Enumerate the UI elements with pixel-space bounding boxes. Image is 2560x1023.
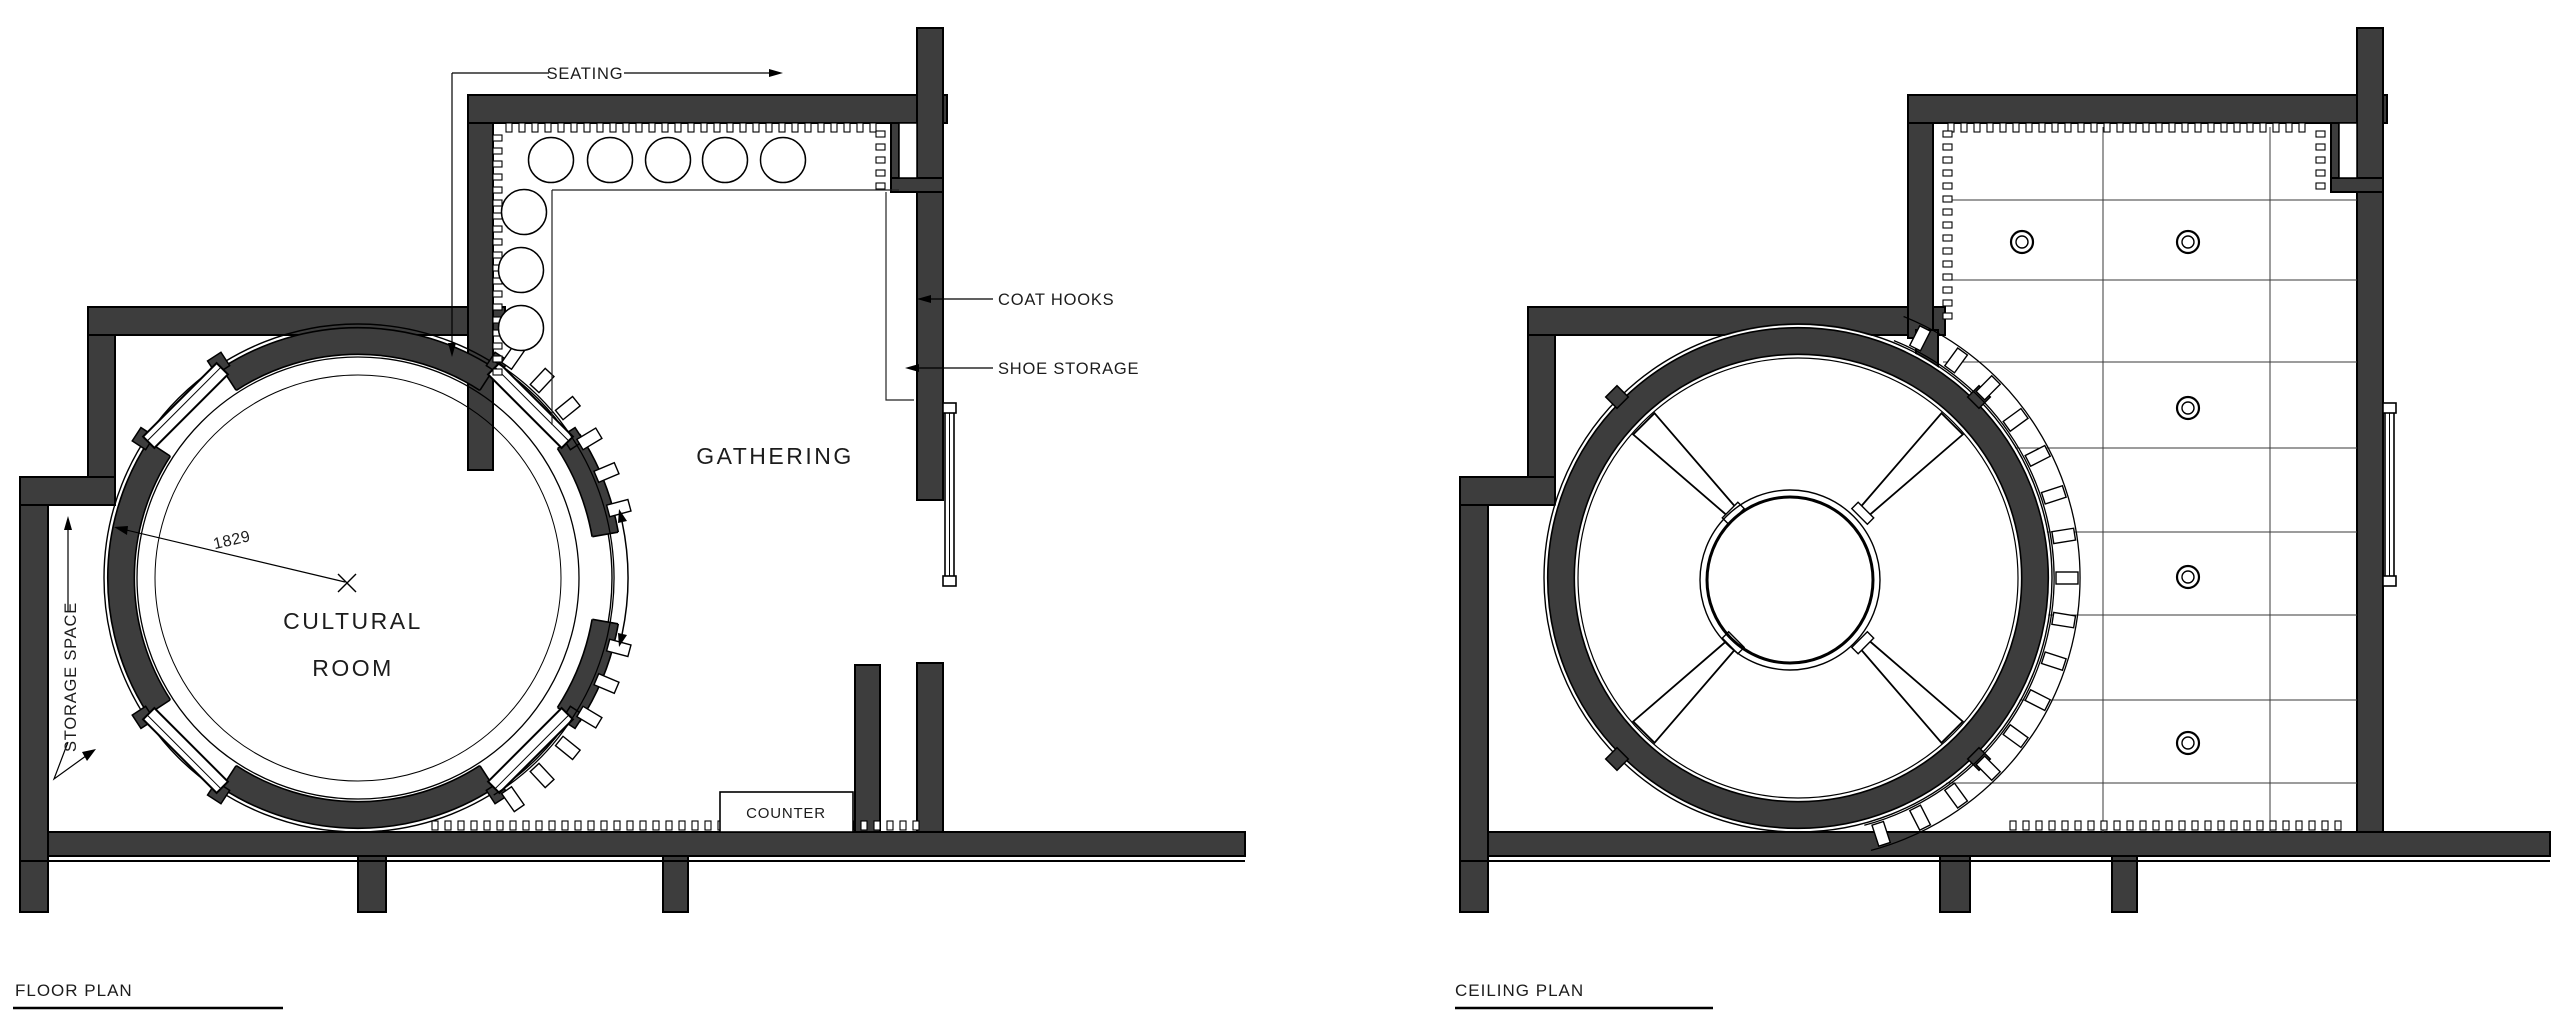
- ceiling-edge-tick: [2335, 821, 2341, 830]
- seat-circle: [502, 190, 547, 235]
- dome-panel-tab-rect: [1910, 805, 1931, 830]
- bench-tick: [844, 123, 850, 132]
- dome-panel-tab-rect: [2052, 528, 2076, 543]
- sliding-door-leaf-c: [2383, 403, 2396, 586]
- floor-edge-tick: [653, 821, 659, 830]
- arrowhead-ne-storage: [82, 749, 96, 761]
- ceiling-edge-tick: [2195, 123, 2201, 132]
- ceiling-light-fixture: [2177, 566, 2199, 588]
- cultural-room-inner-face: [137, 357, 579, 799]
- bench-tick: [857, 123, 863, 132]
- ceiling-edge-tick: [2234, 123, 2240, 132]
- ceiling-edge-tick: [2316, 183, 2325, 189]
- ceiling-edge-tick: [2140, 821, 2146, 830]
- floor-edge-tick: [510, 821, 516, 830]
- seat-circle: [703, 138, 748, 183]
- bench-tick: [493, 239, 502, 245]
- dome-panel-tab-rect: [2003, 725, 2028, 748]
- ceiling-edge-tick: [1943, 222, 1952, 228]
- ceiling-edge-tick: [1943, 157, 1952, 163]
- ceiling-edge-tick: [1943, 274, 1952, 280]
- text-layer: SEATING COAT HOOKS SHOE STORAGE GATHERIN…: [13, 65, 1713, 1008]
- seat-circle: [646, 138, 691, 183]
- wall-niche-bottom-c: [2331, 178, 2383, 192]
- floor-edge-tick: [601, 821, 607, 830]
- pivot-door-leaf: [143, 363, 228, 448]
- wall-left-step: [20, 477, 115, 505]
- ceiling-edge-tick: [2169, 123, 2175, 132]
- ceiling-light-outer: [2177, 231, 2199, 253]
- bench-tick: [506, 123, 512, 132]
- bench-tick: [740, 123, 746, 132]
- wall-counter-side: [855, 665, 880, 832]
- bench-tick: [792, 123, 798, 132]
- floor-edge-tick: [588, 821, 594, 830]
- dome-panel-tab-rect: [2025, 690, 2050, 711]
- floor-plan-title: FLOOR PLAN: [15, 981, 133, 1000]
- pivot-door-leaf-panel: [143, 708, 228, 793]
- seat-circle: [499, 248, 544, 293]
- shoe-storage-label: SHOE STORAGE: [998, 360, 1139, 378]
- ceiling-edge-tick: [2299, 123, 2305, 132]
- floor-edge-tick: [497, 821, 503, 830]
- ceiling-edge-tick: [1943, 144, 1952, 150]
- floor-edge-tick: [536, 821, 542, 830]
- bench-tick: [493, 252, 502, 258]
- ceiling-plan-room-geometry: [1544, 123, 2357, 850]
- floor-edge-tick: [627, 821, 633, 830]
- ceiling-edge-tick: [1943, 248, 1952, 254]
- seat-circle: [529, 138, 574, 183]
- bench-tick: [818, 123, 824, 132]
- bench-tick: [876, 131, 885, 137]
- dome-panel-tab: [2003, 409, 2028, 432]
- wall-right-c: [2357, 28, 2383, 832]
- dome-panel-tab-rect: [2041, 652, 2066, 670]
- floor-edge-tick: [640, 821, 646, 830]
- floor-edge-tick: [445, 821, 451, 830]
- partition-panel-tab: [530, 763, 554, 787]
- partition-pocket-arc: [569, 622, 606, 715]
- bench-tick: [493, 343, 502, 349]
- bench-tick: [876, 183, 885, 189]
- ceiling-light-fixture: [2177, 231, 2199, 253]
- niche-opening: [899, 123, 917, 178]
- dome-panel-tab-rect: [2052, 612, 2076, 627]
- dome-panel-tab: [2041, 652, 2066, 670]
- wall-stub-1: [358, 856, 386, 912]
- dome-panel-tab: [1910, 805, 1931, 830]
- gathering-label: GATHERING: [696, 443, 854, 469]
- dome-panel-tab-rect: [2041, 486, 2066, 504]
- bench-tick: [532, 123, 538, 132]
- ceiling-edge-tick: [1943, 209, 1952, 215]
- ceiling-edge-tick: [2208, 123, 2214, 132]
- dome-panel-tab: [1945, 783, 1968, 808]
- ceiling-edge-tick: [2036, 821, 2042, 830]
- partition-panel-tab: [555, 736, 580, 759]
- wall-right-upper: [917, 28, 943, 500]
- ceiling-edge-tick: [2316, 144, 2325, 150]
- floor-edge-tick: [887, 821, 893, 830]
- seat-circle: [761, 138, 806, 183]
- bench-tick: [545, 123, 551, 132]
- bench-tick: [636, 123, 642, 132]
- floor-edge-tick: [705, 821, 711, 830]
- ceiling-edge-tick: [2156, 123, 2162, 132]
- ceiling-light-outer: [2177, 732, 2199, 754]
- bench-tick: [493, 135, 502, 141]
- bench-tick: [779, 123, 785, 132]
- seat-circle: [499, 306, 544, 351]
- partition-panel-tab: [555, 397, 580, 420]
- ceiling-edge-tick: [1943, 235, 1952, 241]
- ceiling-edge-tick: [2231, 821, 2237, 830]
- dome-panel-tab: [2052, 612, 2076, 627]
- ceiling-edge-tick: [2179, 821, 2185, 830]
- ceiling-edge-tick: [2114, 821, 2120, 830]
- ceiling-edge-tick: [1943, 261, 1952, 267]
- architectural-sheet: SEATING COAT HOOKS SHOE STORAGE GATHERIN…: [0, 0, 2560, 1023]
- ceiling-edge-tick: [1974, 123, 1980, 132]
- pivot-door-leaf-line: [147, 367, 221, 441]
- ceiling-edge-tick: [2091, 123, 2097, 132]
- ceiling-edge-tick: [2000, 123, 2006, 132]
- floor-edge-tick: [900, 821, 906, 830]
- ceiling-edge-tick: [2127, 821, 2133, 830]
- ceiling-edge-tick: [1943, 313, 1952, 319]
- bench-tick: [876, 144, 885, 150]
- ceiling-edge-tick: [2296, 821, 2302, 830]
- floor-edge-tick: [913, 821, 919, 830]
- wall-bottom-c: [1460, 832, 2550, 856]
- ceiling-edge-tick: [2270, 821, 2276, 830]
- ceiling-edge-tick: [2013, 123, 2019, 132]
- ceiling-edge-tick: [1943, 196, 1952, 202]
- bench-tick: [753, 123, 759, 132]
- floor-edge-tick: [874, 821, 880, 830]
- ceiling-light-outer: [2011, 231, 2033, 253]
- ceiling-edge-tick: [2316, 170, 2325, 176]
- partition-panel-tab: [577, 428, 602, 450]
- bench-tick: [493, 148, 502, 154]
- pivot-door-leaf-line: [495, 715, 569, 789]
- floor-edge-tick: [679, 821, 685, 830]
- pivot-door-leaf: [488, 708, 573, 793]
- partition-panel-tab-rect: [555, 736, 580, 759]
- ceiling-edge-tick: [2078, 123, 2084, 132]
- seat-circle: [588, 138, 633, 183]
- ceiling-edge-tick: [2117, 123, 2123, 132]
- wall-seating-top: [468, 95, 947, 123]
- pivot-door-leaf-line: [147, 715, 221, 789]
- ceiling-edge-tick: [1987, 123, 1993, 132]
- ceiling-edge-tick: [1943, 131, 1952, 137]
- floor-edge-tick: [549, 821, 555, 830]
- ceiling-edge-tick: [2205, 821, 2211, 830]
- floor-plan-room-geometry: [104, 123, 919, 832]
- bench-tick: [805, 123, 811, 132]
- floor-edge-tick: [432, 821, 438, 830]
- pivot-door-leaf: [488, 363, 573, 448]
- arrowhead-up-storage: [64, 516, 72, 530]
- wall-cultural-top-c: [1528, 307, 1945, 335]
- partition-panel-tab: [577, 706, 602, 728]
- partition-panel-tab: [502, 787, 524, 812]
- ceiling-edge-tick: [2039, 123, 2045, 132]
- ceiling-edge-tick: [2182, 123, 2188, 132]
- wall-left-lower-c: [1460, 505, 1488, 912]
- cultural-room-label-line2: ROOM: [312, 655, 394, 681]
- wall-stub-1c: [1940, 856, 1970, 912]
- ceiling-edge-tick: [2026, 123, 2032, 132]
- ceiling-edge-tick: [2010, 821, 2016, 830]
- dome-panel-tab: [1945, 348, 1968, 373]
- ceiling-edge-tick: [2244, 821, 2250, 830]
- floor-edge-tick: [692, 821, 698, 830]
- partition-swing-arrow: [622, 522, 628, 634]
- floor-edge-tick: [861, 821, 867, 830]
- niche-opening-c: [2339, 123, 2357, 178]
- ceiling-light-outer: [2177, 397, 2199, 419]
- storage-space-label: STORAGE SPACE: [62, 602, 80, 752]
- bench-tick: [493, 356, 502, 362]
- bench-tick: [662, 123, 668, 132]
- ceiling-edge-tick: [2049, 821, 2055, 830]
- wall-left-step-c: [1460, 477, 1555, 505]
- bench-tick: [876, 170, 885, 176]
- floor-edge-tick: [614, 821, 620, 830]
- ceiling-edge-tick: [1943, 300, 1952, 306]
- floor-edge-tick: [575, 821, 581, 830]
- partition-panel-tab-rect: [530, 368, 554, 392]
- ceiling-light-fixture: [2177, 732, 2199, 754]
- floor-edge-tick: [484, 821, 490, 830]
- ceiling-edge-tick: [1961, 123, 1967, 132]
- wall-left-lower: [20, 505, 48, 912]
- bench-tick: [727, 123, 733, 132]
- partition-panel-tab-rect: [577, 706, 602, 728]
- bench-tick: [493, 174, 502, 180]
- ceiling-edge-tick: [2257, 821, 2263, 830]
- cultural-room-label-line1: CULTURAL: [283, 608, 423, 634]
- ceiling-edge-tick: [2143, 123, 2149, 132]
- ceiling-edge-tick: [1943, 170, 1952, 176]
- bench-tick: [610, 123, 616, 132]
- ceiling-edge-tick: [2075, 821, 2081, 830]
- ceiling-edge-tick: [2166, 821, 2172, 830]
- wall-stub-2: [663, 856, 688, 912]
- ceiling-light-fixture: [2177, 397, 2199, 419]
- bench-tick: [675, 123, 681, 132]
- bench-tick: [493, 369, 502, 375]
- bench-tick: [649, 123, 655, 132]
- room-center-mark: [338, 574, 356, 592]
- bench-tick: [493, 187, 502, 193]
- seating-label: SEATING: [547, 65, 624, 83]
- plans-drawing: SEATING COAT HOOKS SHOE STORAGE GATHERIN…: [0, 0, 2560, 1023]
- ceiling-edge-tick: [2101, 821, 2107, 830]
- partition-panel-tab-rect: [555, 397, 580, 420]
- cultural-room-floor-line: [155, 375, 561, 781]
- dome-panel-tab: [2025, 446, 2050, 467]
- ceiling-edge-tick: [2218, 821, 2224, 830]
- leader-lines: [54, 73, 993, 779]
- ceiling-edge-tick: [2286, 123, 2292, 132]
- ceiling-edge-tick: [2283, 821, 2289, 830]
- bench-tick: [766, 123, 772, 132]
- partition-panel-tab-rect: [577, 428, 602, 450]
- ceiling-plan-title: CEILING PLAN: [1455, 981, 1584, 1000]
- ceiling-edge-tick: [2153, 821, 2159, 830]
- ceiling-light-fixture: [2011, 231, 2033, 253]
- ceiling-edge-tick: [1943, 287, 1952, 293]
- bench-tick: [831, 123, 837, 132]
- pivot-door-leaf: [143, 708, 228, 793]
- bench-tick: [558, 123, 564, 132]
- bench-tick: [701, 123, 707, 132]
- ceiling-edge-tick: [2247, 123, 2253, 132]
- arrowhead-right: [769, 69, 783, 77]
- floor-edge-tick: [562, 821, 568, 830]
- ceiling-edge-tick: [2130, 123, 2136, 132]
- bench-tick: [519, 123, 525, 132]
- ceiling-edge-tick: [2062, 821, 2068, 830]
- bench-tick: [493, 200, 502, 206]
- dome-panel-tab-rect: [1945, 348, 1968, 373]
- dome-panel-tab: [2052, 528, 2076, 543]
- ceiling-light-outer: [2177, 566, 2199, 588]
- bench-tick: [623, 123, 629, 132]
- ceiling-edge-tick: [1943, 183, 1952, 189]
- wall-seating-left: [468, 123, 493, 470]
- bench-tick: [870, 123, 876, 132]
- pivot-door-leaf-panel: [488, 708, 573, 793]
- floor-edge-tick: [458, 821, 464, 830]
- partition-panel-tab: [530, 368, 554, 392]
- bench-tick: [493, 304, 502, 310]
- bench-tick: [584, 123, 590, 132]
- bench-tick: [714, 123, 720, 132]
- ceiling-edge-tick: [2221, 123, 2227, 132]
- wall-gathering-left-c: [1908, 123, 1933, 338]
- radius-dimension-text: 1829: [212, 528, 252, 553]
- coat-hooks-label: COAT HOOKS: [998, 291, 1115, 309]
- arrowhead-left-shoe: [905, 364, 919, 372]
- dome-panel-tab-rect: [2056, 572, 2078, 584]
- bench-tick: [597, 123, 603, 132]
- pivot-door-leaf-line: [495, 367, 569, 441]
- ceiling-edge-tick: [2309, 821, 2315, 830]
- bench-tick: [493, 213, 502, 219]
- ceiling-edge-tick: [2322, 821, 2328, 830]
- floor-edge-tick: [523, 821, 529, 830]
- ceiling-edge-tick: [2104, 123, 2110, 132]
- dome-panel-tab: [2056, 572, 2078, 584]
- partition-panel-tab-rect: [530, 763, 554, 787]
- ceiling-edge-tick: [2273, 123, 2279, 132]
- pivot-door-leaf-panel: [488, 363, 573, 448]
- sliding-door-leaf: [943, 403, 956, 586]
- ceiling-edge-tick: [2192, 821, 2198, 830]
- ceiling-edge-tick: [2065, 123, 2071, 132]
- wall-stub-2c: [2112, 856, 2137, 912]
- dome-panel-tab-rect: [1945, 783, 1968, 808]
- dome-panel-tab: [2025, 690, 2050, 711]
- dome-panel-tab: [2003, 725, 2028, 748]
- partition-pocket-arc: [569, 441, 606, 534]
- dome-panel-tab-rect: [2025, 446, 2050, 467]
- ceiling-edge-tick: [2316, 131, 2325, 137]
- wall-bottom: [20, 832, 1245, 856]
- floor-edge-tick: [666, 821, 672, 830]
- dome-panel-tab-rect: [2003, 409, 2028, 432]
- partition-panel-tab-rect: [502, 787, 524, 812]
- bench-tick: [493, 291, 502, 297]
- dome-panel-tab: [2041, 486, 2066, 504]
- wall-top-c: [1908, 95, 2387, 123]
- ceiling-edge-tick: [2260, 123, 2266, 132]
- wall-cultural-top: [88, 307, 505, 335]
- ceiling-edge-tick: [2052, 123, 2058, 132]
- wall-niche-left-c: [2331, 123, 2339, 178]
- bench-tick: [493, 226, 502, 232]
- wall-right-lower: [917, 663, 943, 832]
- ceiling-edge-tick: [2316, 157, 2325, 163]
- bench-tick: [493, 161, 502, 167]
- bench-tick: [876, 157, 885, 163]
- ceiling-edge-tick: [2023, 821, 2029, 830]
- ceiling-edge-tick: [2088, 821, 2094, 830]
- bench-tick: [688, 123, 694, 132]
- pivot-door-leaf-panel: [143, 363, 228, 448]
- floor-edge-tick: [471, 821, 477, 830]
- counter-label: COUNTER: [746, 805, 826, 822]
- wall-niche-left: [891, 123, 899, 178]
- bench-tick: [571, 123, 577, 132]
